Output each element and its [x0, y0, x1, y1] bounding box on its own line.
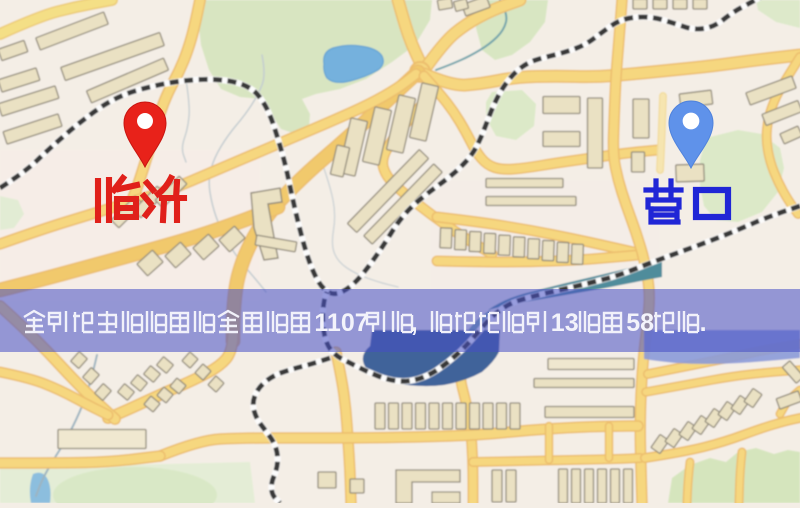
- svg-text:.: .: [700, 309, 707, 337]
- svg-text:13: 13: [551, 309, 579, 337]
- svg-text:,: ,: [411, 309, 418, 337]
- svg-text:58: 58: [626, 309, 654, 337]
- svg-text:1107: 1107: [314, 309, 368, 337]
